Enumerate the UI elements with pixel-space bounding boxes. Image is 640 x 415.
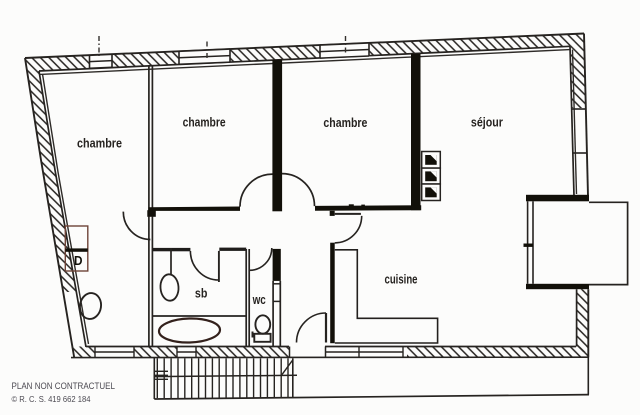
svg-text:chambre: chambre (183, 115, 226, 130)
svg-text:chambre: chambre (323, 115, 367, 130)
svg-text:D: D (74, 253, 83, 268)
svg-text:chambre: chambre (77, 135, 122, 150)
svg-text:séjour: séjour (471, 115, 503, 130)
svg-text:sb: sb (195, 285, 208, 300)
svg-text:© R. C. S. 419 662 184: © R. C. S. 419 662 184 (12, 394, 91, 404)
svg-text:PLAN NON CONTRACTUEL: PLAN NON CONTRACTUEL (12, 381, 116, 392)
svg-text:cuisine: cuisine (385, 271, 418, 286)
svg-text:wc: wc (252, 292, 266, 307)
